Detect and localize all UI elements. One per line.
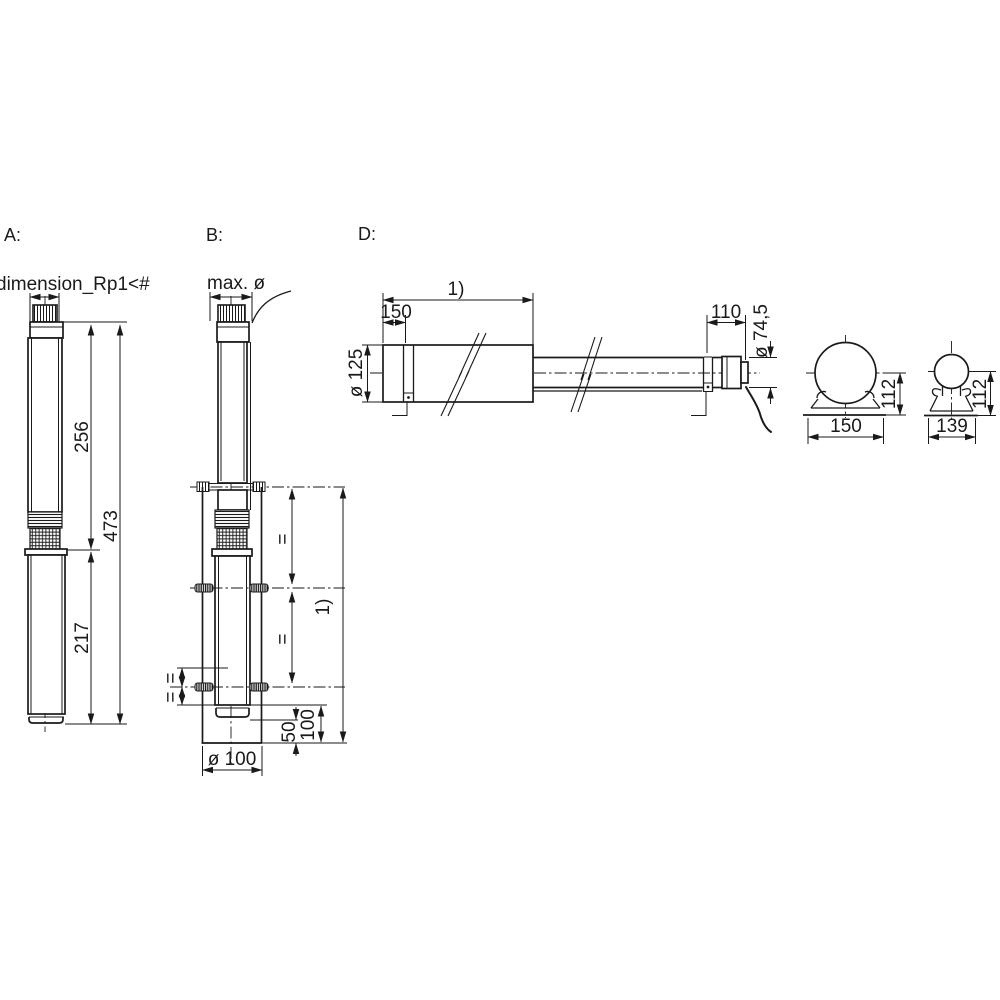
view-a-pump-drawing — [25, 296, 67, 732]
view-d-cable-left — [392, 402, 407, 416]
dim-text-dia-74: ø 74,5 — [751, 304, 772, 358]
view-b-stage-stack — [215, 510, 249, 528]
dim-text-256: 256 — [72, 421, 93, 453]
view-b-cable-clamp-3-right — [250, 683, 268, 691]
view-a-threaded-port — [33, 305, 57, 322]
view-d: D: — [346, 224, 996, 444]
view-b: B: — [161, 225, 347, 776]
dim-text-equal: = — [161, 672, 182, 683]
view-a-suction-strainer — [30, 528, 60, 549]
view-b-cable-clamp-2-right — [250, 584, 268, 592]
view-a-motor-body — [28, 555, 65, 714]
view-d-side-drawing — [370, 333, 771, 432]
view-b-label: B: — [206, 225, 223, 245]
view-d-cable-right-drop — [691, 392, 706, 416]
view-a-dimensions: dimension_Rp1<# 256 473 217 — [0, 274, 150, 724]
dimension-drawing: A: dimension_Rp1<# — [0, 0, 1000, 1000]
dimension-drawing-page: A: dimension_Rp1<# — [0, 0, 1000, 1000]
view-d-clamp-right-bolt-dot — [707, 386, 710, 389]
dim-text-equal: = — [273, 533, 294, 544]
end-small-circle — [935, 355, 969, 389]
dim-text-50: 50 — [279, 721, 300, 742]
dim-text-100: 100 — [298, 709, 319, 741]
view-b-body-lower — [218, 490, 247, 510]
view-a-motor-flange — [25, 549, 67, 555]
dim-text-112-small: 112 — [970, 379, 991, 409]
dim-text-overall-d: 1) — [448, 279, 465, 300]
view-a-port-dimension-text: dimension_Rp1<# — [0, 274, 150, 295]
view-d-cable-end — [746, 387, 771, 432]
dim-text-150-end: 150 — [830, 416, 862, 437]
view-d-clamp-left-bolt-dot — [407, 396, 410, 399]
view-b-cable-clamp-3-left — [195, 683, 213, 691]
view-b-clamp1-bolt-right — [253, 482, 265, 492]
view-b-bottom-cap — [216, 708, 249, 717]
view-d-end-view-large: 150 112 — [803, 335, 906, 444]
view-b-pump-drawing — [170, 291, 345, 766]
view-d-end-view-small: 139 112 — [924, 341, 996, 444]
view-d-coupling — [722, 357, 741, 389]
dim-text-150-d: 150 — [380, 302, 412, 323]
view-b-cable-clamp-2-left — [195, 584, 213, 592]
view-d-break-small — [571, 337, 602, 412]
view-b-max-dia-text: max. ø — [207, 273, 265, 294]
dim-text-473: 473 — [101, 510, 122, 542]
view-b-threaded-port — [218, 305, 245, 322]
view-d-label: D: — [358, 224, 376, 244]
view-b-suction-strainer — [217, 528, 247, 549]
view-a-label: A: — [4, 225, 21, 245]
dim-text-110: 110 — [711, 302, 741, 323]
dim-text-dia-125: ø 125 — [346, 349, 367, 398]
dim-text-217: 217 — [72, 622, 93, 654]
view-b-pump-body — [218, 342, 247, 483]
dim-text-139: 139 — [936, 416, 968, 437]
view-a: A: dimension_Rp1<# — [0, 225, 150, 732]
view-a-discharge-head — [30, 322, 63, 338]
view-b-cable-top — [252, 291, 291, 323]
view-d-end-piece — [741, 362, 748, 383]
dim-text-casing-dia: ø 100 — [208, 749, 257, 770]
view-b-motor-body — [215, 556, 250, 705]
view-a-bottom-cap — [29, 717, 63, 723]
dim-text-equal: = — [161, 691, 182, 702]
dim-text-overall-b: 1) — [313, 599, 334, 616]
dim-text-112-large: 112 — [879, 379, 900, 409]
view-a-stage-stack — [28, 512, 62, 528]
view-b-discharge-head — [217, 322, 249, 342]
view-a-pump-body — [28, 338, 62, 512]
view-b-dimensions: max. ø = = = = 1) 100 50 — [161, 273, 347, 776]
end-large-circle — [815, 343, 876, 404]
view-b-motor-flange — [212, 549, 252, 556]
dim-text-equal: = — [273, 633, 294, 644]
